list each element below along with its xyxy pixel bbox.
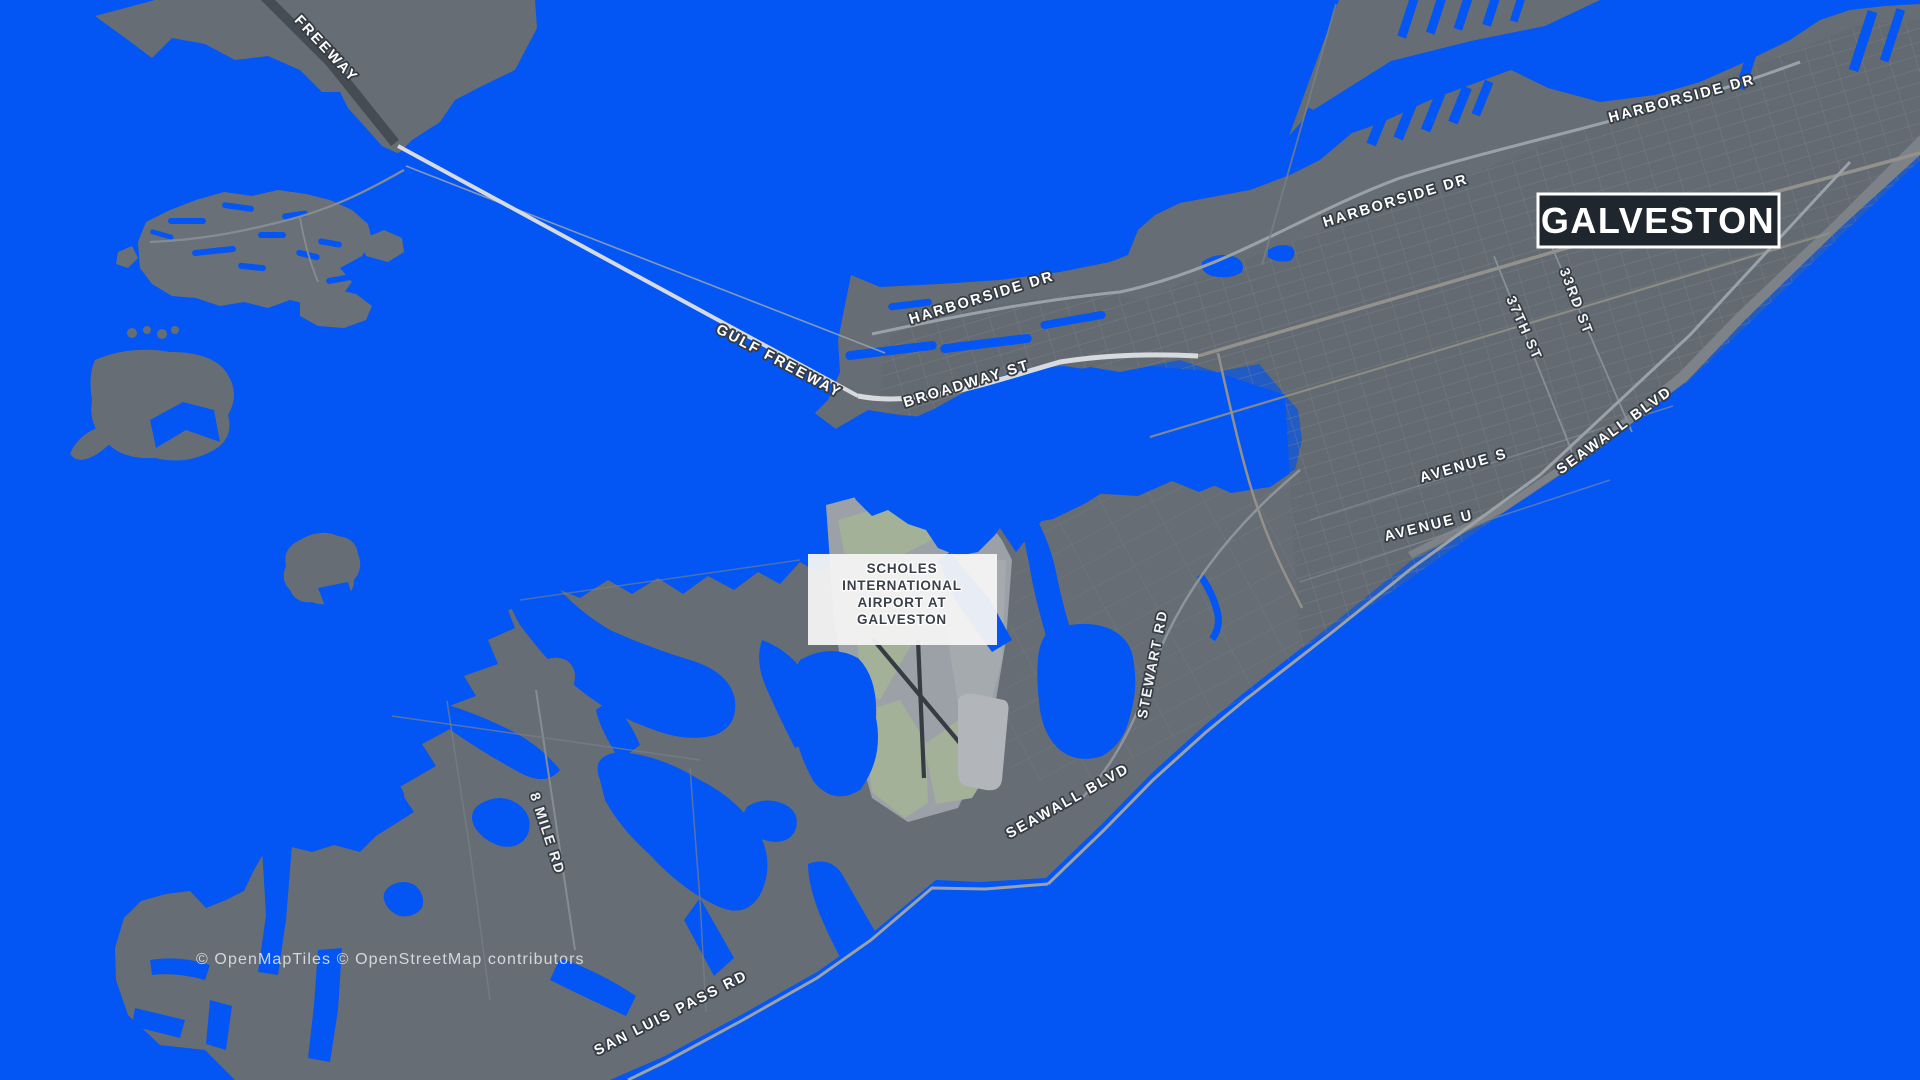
svg-text:GALVESTON: GALVESTON <box>1541 200 1775 241</box>
svg-text:AIRPORT AT: AIRPORT AT <box>858 595 947 610</box>
svg-text:INTERNATIONAL: INTERNATIONAL <box>842 578 962 593</box>
svg-text:© OpenMapTiles © OpenStreetMap: © OpenMapTiles © OpenStreetMap contribut… <box>196 951 585 968</box>
svg-text:SCHOLES: SCHOLES <box>867 561 938 576</box>
svg-text:GALVESTON: GALVESTON <box>857 612 947 627</box>
